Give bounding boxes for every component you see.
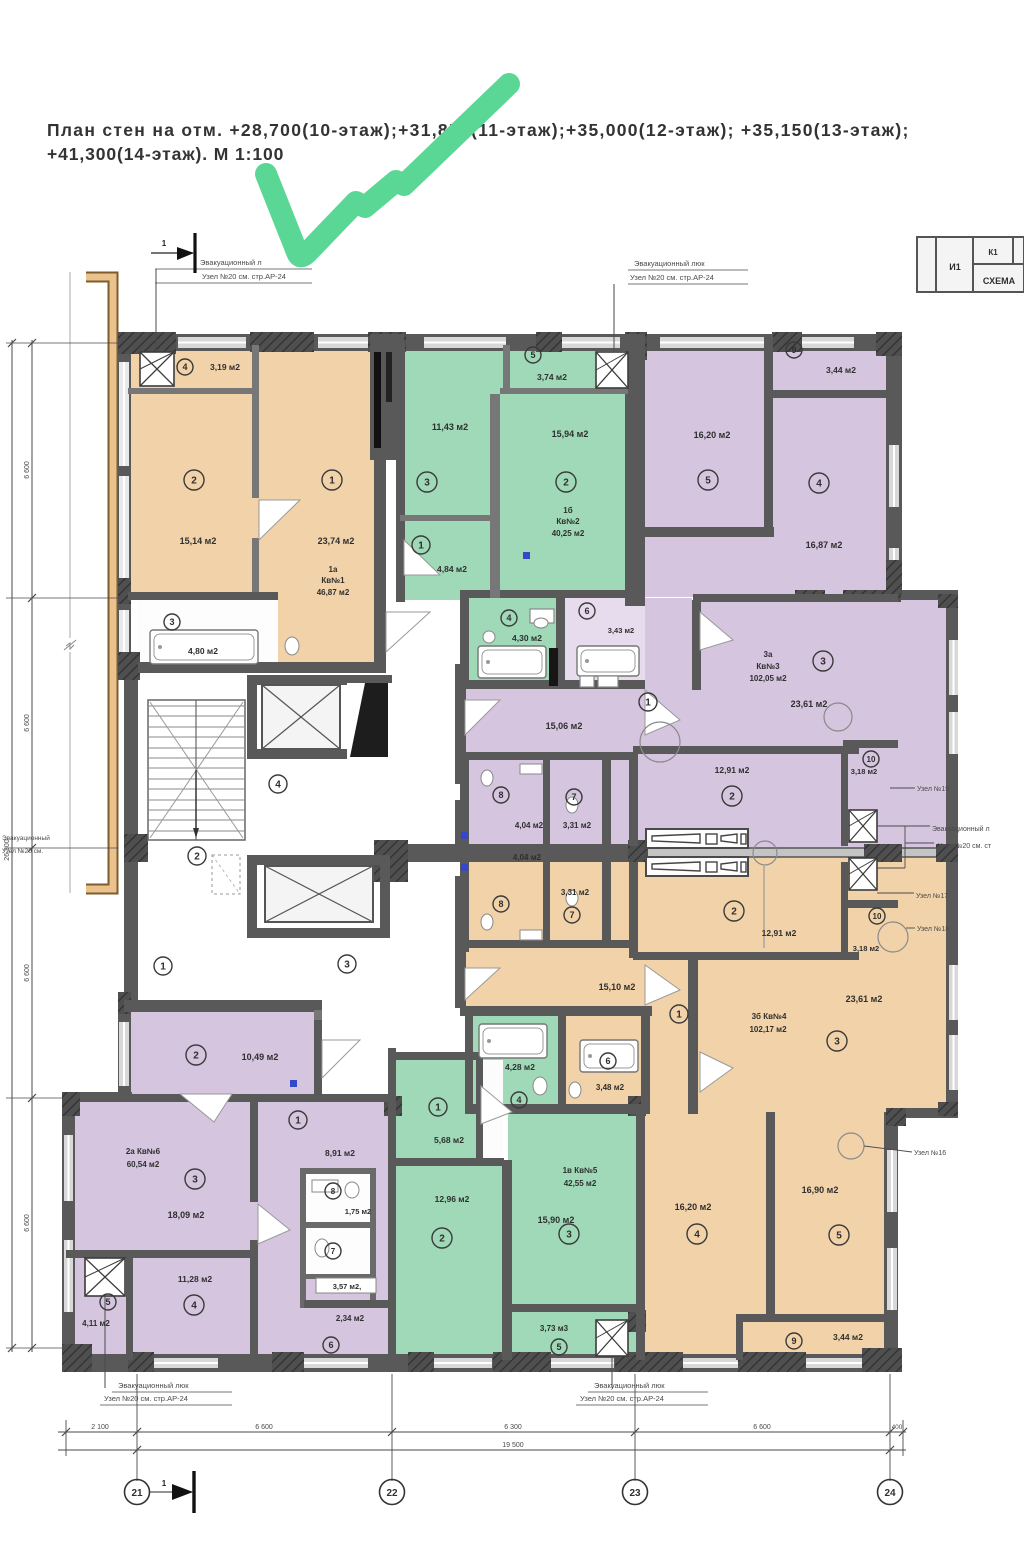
svg-text:8: 8 [331, 1187, 336, 1196]
svg-text:Узел №20 см. ст: Узел №20 см. ст [938, 843, 992, 850]
svg-text:3,44 м2: 3,44 м2 [833, 1332, 863, 1342]
svg-text:23,61 м2: 23,61 м2 [846, 994, 883, 1004]
svg-text:+41,300(14-этаж). М 1:100: +41,300(14-этаж). М 1:100 [47, 144, 284, 164]
svg-text:42,55 м2: 42,55 м2 [564, 1179, 597, 1188]
svg-text:10,49 м2: 10,49 м2 [242, 1052, 279, 1062]
svg-text:10: 10 [867, 755, 876, 764]
svg-text:Эвакуационный л: Эвакуационный л [932, 825, 990, 833]
svg-text:2: 2 [191, 476, 197, 487]
svg-text:3,57 м2,: 3,57 м2, [333, 1282, 361, 1291]
svg-text:4: 4 [516, 1095, 521, 1105]
svg-text:16,90 м2: 16,90 м2 [802, 1185, 839, 1195]
svg-text:9: 9 [791, 345, 796, 355]
svg-text:8: 8 [498, 899, 503, 909]
svg-text:6 600: 6 600 [255, 1424, 273, 1431]
svg-text:3,18 м2: 3,18 м2 [851, 767, 877, 776]
svg-text:7: 7 [571, 792, 576, 802]
svg-text:6 600: 6 600 [24, 964, 31, 982]
svg-text:2: 2 [729, 792, 735, 803]
svg-text:5: 5 [530, 350, 535, 360]
svg-text:6 600: 6 600 [24, 714, 31, 732]
svg-text:Узел №20 см. стр.АР-24: Узел №20 см. стр.АР-24 [580, 1394, 664, 1403]
svg-text:3: 3 [820, 657, 826, 668]
svg-text:46,87 м2: 46,87 м2 [317, 588, 350, 597]
svg-text:102,05 м2: 102,05 м2 [749, 674, 787, 683]
svg-text:15,94 м2: 15,94 м2 [552, 429, 589, 439]
svg-text:3б Кв№4: 3б Кв№4 [752, 1012, 787, 1021]
svg-text:15,06 м2: 15,06 м2 [546, 721, 583, 731]
svg-text:3,48 м2: 3,48 м2 [596, 1083, 625, 1092]
svg-text:4: 4 [275, 780, 281, 791]
svg-text:1: 1 [160, 962, 166, 973]
svg-text:16,87 м2: 16,87 м2 [806, 540, 843, 550]
svg-text:3: 3 [566, 1230, 572, 1241]
svg-text:Узел №20 см. стр.АР-24: Узел №20 см. стр.АР-24 [202, 272, 286, 281]
svg-text:11,43 м2: 11,43 м2 [432, 422, 468, 432]
svg-text:3,73 м3: 3,73 м3 [540, 1324, 569, 1333]
svg-text:1в Кв№5: 1в Кв№5 [563, 1166, 598, 1175]
svg-text:26 300: 26 300 [4, 839, 11, 861]
svg-text:1: 1 [295, 1116, 301, 1127]
svg-text:3а: 3а [764, 650, 773, 659]
svg-text:3,31 м2: 3,31 м2 [561, 888, 590, 897]
svg-text:СХЕМА: СХЕМА [983, 276, 1016, 286]
svg-text:15,90 м2: 15,90 м2 [538, 1215, 575, 1225]
svg-text:4: 4 [182, 362, 187, 372]
svg-text:7: 7 [331, 1247, 336, 1256]
svg-text:4: 4 [191, 1301, 197, 1312]
svg-text:1: 1 [162, 239, 167, 248]
svg-text:23,74 м2: 23,74 м2 [318, 536, 355, 546]
svg-text:4,84 м2: 4,84 м2 [437, 564, 467, 574]
svg-text:1,75 м2: 1,75 м2 [345, 1207, 371, 1216]
svg-text:12,96 м2: 12,96 м2 [435, 1194, 470, 1204]
svg-text:24: 24 [884, 1488, 896, 1499]
svg-text:2: 2 [563, 478, 569, 489]
svg-text:4,04 м2: 4,04 м2 [513, 853, 542, 862]
svg-text:3: 3 [192, 1175, 198, 1186]
svg-text:3: 3 [344, 960, 350, 971]
svg-text:12,91 м2: 12,91 м2 [762, 928, 797, 938]
svg-text:2: 2 [439, 1234, 445, 1245]
svg-text:5: 5 [836, 1231, 842, 1242]
svg-text:16,20 м2: 16,20 м2 [675, 1202, 712, 1212]
svg-text:4,30 м2: 4,30 м2 [512, 633, 542, 643]
svg-text:6: 6 [605, 1056, 610, 1066]
svg-text:2: 2 [193, 1051, 199, 1062]
svg-text:К1: К1 [988, 248, 998, 257]
svg-text:40,25 м2: 40,25 м2 [552, 529, 585, 538]
svg-text:И1: И1 [949, 262, 960, 272]
svg-text:Эвакуационный люк: Эвакуационный люк [118, 1381, 189, 1390]
svg-text:3,43 м2: 3,43 м2 [608, 626, 634, 635]
svg-text:15,10 м2: 15,10 м2 [599, 982, 636, 992]
svg-text:1: 1 [435, 1103, 441, 1114]
svg-text:6 600: 6 600 [753, 1424, 771, 1431]
svg-text:2 100: 2 100 [91, 1424, 109, 1431]
svg-text:1: 1 [645, 698, 651, 709]
svg-text:4: 4 [816, 479, 822, 490]
svg-text:Узел №16: Узел №16 [914, 1150, 946, 1157]
svg-text:Эвакуационный л: Эвакуационный л [200, 258, 262, 267]
svg-text:3: 3 [834, 1037, 840, 1048]
svg-text:2,34 м2: 2,34 м2 [336, 1314, 365, 1323]
svg-text:Эвакуационный люк: Эвакуационный люк [634, 259, 705, 268]
svg-text:3,44 м2: 3,44 м2 [826, 365, 856, 375]
svg-text:3,31 м2: 3,31 м2 [563, 821, 592, 830]
svg-text:6 600: 6 600 [24, 1214, 31, 1232]
svg-text:Узел №17: Узел №17 [916, 893, 948, 900]
svg-text:4: 4 [694, 1230, 700, 1241]
svg-text:Кв№3: Кв№3 [756, 662, 780, 671]
svg-text:3,18 м2: 3,18 м2 [853, 944, 879, 953]
svg-text:4,11 м2: 4,11 м2 [82, 1319, 110, 1328]
svg-text:6 600: 6 600 [24, 461, 31, 479]
svg-text:2: 2 [194, 852, 200, 863]
svg-text:Кв№1: Кв№1 [321, 576, 345, 585]
svg-text:19 500: 19 500 [502, 1442, 524, 1449]
svg-text:4: 4 [506, 613, 511, 623]
svg-text:6: 6 [328, 1340, 333, 1350]
svg-text:4,28 м2: 4,28 м2 [505, 1062, 535, 1072]
svg-text:11,28 м2: 11,28 м2 [178, 1274, 212, 1284]
svg-text:1: 1 [676, 1010, 682, 1021]
svg-text:7: 7 [569, 910, 574, 920]
svg-text:3,19 м2: 3,19 м2 [210, 362, 240, 372]
svg-text:Узел №18: Узел №18 [917, 926, 949, 933]
svg-text:5,68 м2: 5,68 м2 [434, 1135, 464, 1145]
svg-text:10: 10 [873, 912, 882, 921]
svg-text:102,17 м2: 102,17 м2 [749, 1025, 787, 1034]
svg-text:4,04 м2: 4,04 м2 [515, 821, 544, 830]
svg-text:Узел №20 см. стр.АР-24: Узел №20 см. стр.АР-24 [630, 273, 714, 282]
svg-text:16,20 м2: 16,20 м2 [694, 430, 731, 440]
svg-text:1: 1 [329, 476, 335, 487]
svg-text:3,74 м2: 3,74 м2 [537, 372, 567, 382]
svg-text:22: 22 [386, 1488, 398, 1499]
svg-text:1: 1 [418, 541, 424, 552]
svg-text:1: 1 [162, 1479, 167, 1488]
svg-text:15,14 м2: 15,14 м2 [180, 536, 217, 546]
svg-text:3: 3 [424, 478, 430, 489]
svg-text:5: 5 [105, 1297, 110, 1307]
svg-text:60,54 м2: 60,54 м2 [127, 1160, 160, 1169]
svg-text:Узел №20 см. стр.АР-24: Узел №20 см. стр.АР-24 [104, 1394, 188, 1403]
svg-text:8: 8 [498, 790, 503, 800]
svg-text:23,61 м2: 23,61 м2 [791, 699, 828, 709]
svg-text:21: 21 [131, 1488, 143, 1499]
svg-text:3: 3 [169, 617, 174, 627]
svg-text:12,91 м2: 12,91 м2 [715, 765, 750, 775]
svg-text:5: 5 [705, 476, 711, 487]
svg-text:5: 5 [556, 1342, 561, 1352]
svg-text:6 300: 6 300 [504, 1424, 522, 1431]
svg-text:4,80 м2: 4,80 м2 [188, 646, 218, 656]
svg-text:2: 2 [731, 907, 737, 918]
svg-text:400: 400 [892, 1424, 903, 1431]
svg-text:1б: 1б [563, 506, 572, 515]
svg-text:Кв№2: Кв№2 [556, 517, 580, 526]
svg-text:Эвакуационный люк: Эвакуационный люк [594, 1381, 665, 1390]
svg-text:1а: 1а [329, 565, 338, 574]
svg-text:18,09 м2: 18,09 м2 [168, 1210, 205, 1220]
svg-text:23: 23 [629, 1488, 641, 1499]
svg-text:9: 9 [791, 1336, 796, 1346]
svg-text:2а Кв№6: 2а Кв№6 [126, 1147, 161, 1156]
svg-text:6: 6 [584, 606, 589, 616]
svg-text:Узел №19: Узел №19 [917, 786, 949, 793]
svg-text:8,91 м2: 8,91 м2 [325, 1148, 355, 1158]
